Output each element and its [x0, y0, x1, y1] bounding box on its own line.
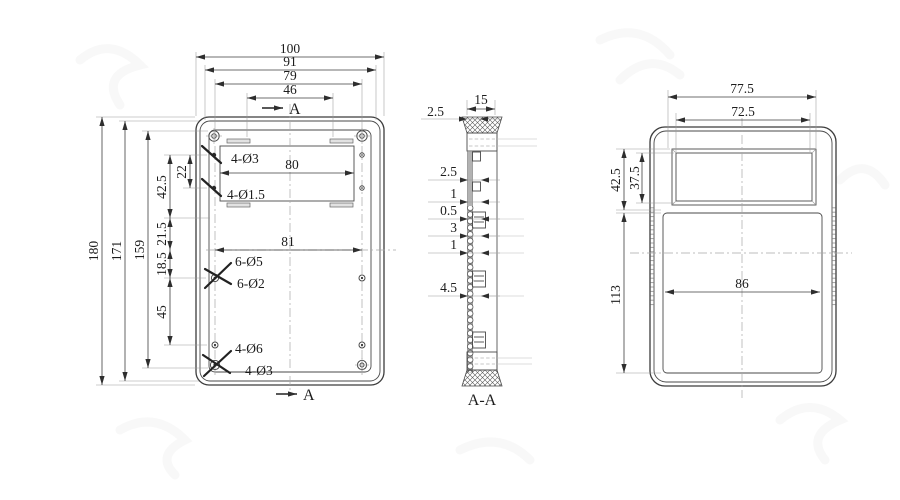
dim-side-86: 86 — [735, 276, 749, 291]
section-bottom-cap — [462, 370, 502, 386]
front-view-dimensions: 100 91 79 46 180 171 159 42.5 22 21.5 18… — [86, 41, 384, 385]
dim-front-18-5: 18.5 — [154, 252, 169, 276]
dim-front-80: 80 — [285, 157, 299, 172]
dim-front-21-5: 21.5 — [154, 222, 169, 246]
section-label: A-A — [468, 392, 497, 409]
side-view — [630, 118, 852, 398]
mid-holes — [210, 274, 365, 369]
dim-front-159: 159 — [132, 240, 147, 261]
dim-section-0-5: 0.5 — [440, 203, 457, 218]
dim-side-37-5: 37.5 — [627, 166, 642, 190]
section-top-collar — [467, 133, 497, 151]
dim-front-46: 46 — [283, 82, 297, 97]
dim-front-79: 79 — [283, 68, 297, 83]
dim-front-171: 171 — [109, 241, 124, 261]
dim-front-81: 81 — [281, 234, 295, 249]
section-view: A-A — [462, 117, 537, 409]
side-panel-inner — [676, 153, 812, 201]
hole-label-mid-inner: 6-Ø2 — [237, 276, 265, 291]
dim-side-113: 113 — [608, 285, 623, 305]
dim-section-2-5: 2.5 — [440, 164, 457, 179]
svg-text:A: A — [303, 387, 315, 404]
dim-front-45: 45 — [154, 305, 169, 319]
drawing-svg: 4-Ø3 4-Ø1.5 6-Ø5 6-Ø2 4-Ø6 4-Ø3 A A 100 … — [0, 0, 900, 500]
dim-front-180: 180 — [86, 241, 101, 262]
dim-front-91: 91 — [283, 54, 297, 69]
dim-section-4-5: 4.5 — [440, 280, 457, 295]
panel-bevels — [672, 149, 816, 205]
dim-side-42-5: 42.5 — [608, 168, 623, 192]
section-marker-bottom: A — [276, 387, 315, 404]
dim-side-72-5: 72.5 — [731, 104, 755, 119]
front-view: 4-Ø3 4-Ø1.5 6-Ø5 6-Ø2 4-Ø6 4-Ø3 A A — [196, 101, 396, 404]
side-view-dimensions: 77.5 72.5 42.5 37.5 113 86 — [608, 81, 820, 373]
side-panel-outer — [672, 149, 816, 205]
dim-front-22: 22 — [174, 165, 189, 179]
hole-label-top: 4-Ø3 — [231, 151, 259, 166]
hole-label-bottom-inner: 4-Ø3 — [245, 363, 273, 378]
dim-front-42-5: 42.5 — [154, 175, 169, 199]
hole-label-slot: 4-Ø1.5 — [227, 187, 265, 202]
svg-text:A: A — [289, 101, 301, 118]
projection-lines — [486, 139, 537, 364]
dim-section-top-2-5: 2.5 — [427, 104, 444, 119]
section-marker-top: A — [262, 101, 301, 118]
dim-section-1b: 1 — [450, 237, 457, 252]
hole-label-mid-outer: 6-Ø5 — [235, 254, 263, 269]
engineering-drawing-canvas: 4-Ø3 4-Ø1.5 6-Ø5 6-Ø2 4-Ø6 4-Ø3 A A 100 … — [0, 0, 900, 500]
hole-label-bottom-outer: 4-Ø6 — [235, 341, 263, 356]
side-second-outline — [654, 131, 832, 382]
side-outer-outline — [650, 127, 836, 386]
dim-section-1a: 1 — [450, 186, 457, 201]
hole-leaders — [202, 146, 231, 376]
section-wall-hatch — [467, 206, 477, 372]
side-left-ribs — [650, 207, 654, 308]
dim-side-77-5: 77.5 — [730, 81, 754, 96]
dim-section-3: 3 — [450, 220, 457, 235]
side-lower-recess — [663, 213, 822, 373]
dim-section-15: 15 — [474, 92, 488, 107]
side-right-ribs — [831, 207, 835, 308]
